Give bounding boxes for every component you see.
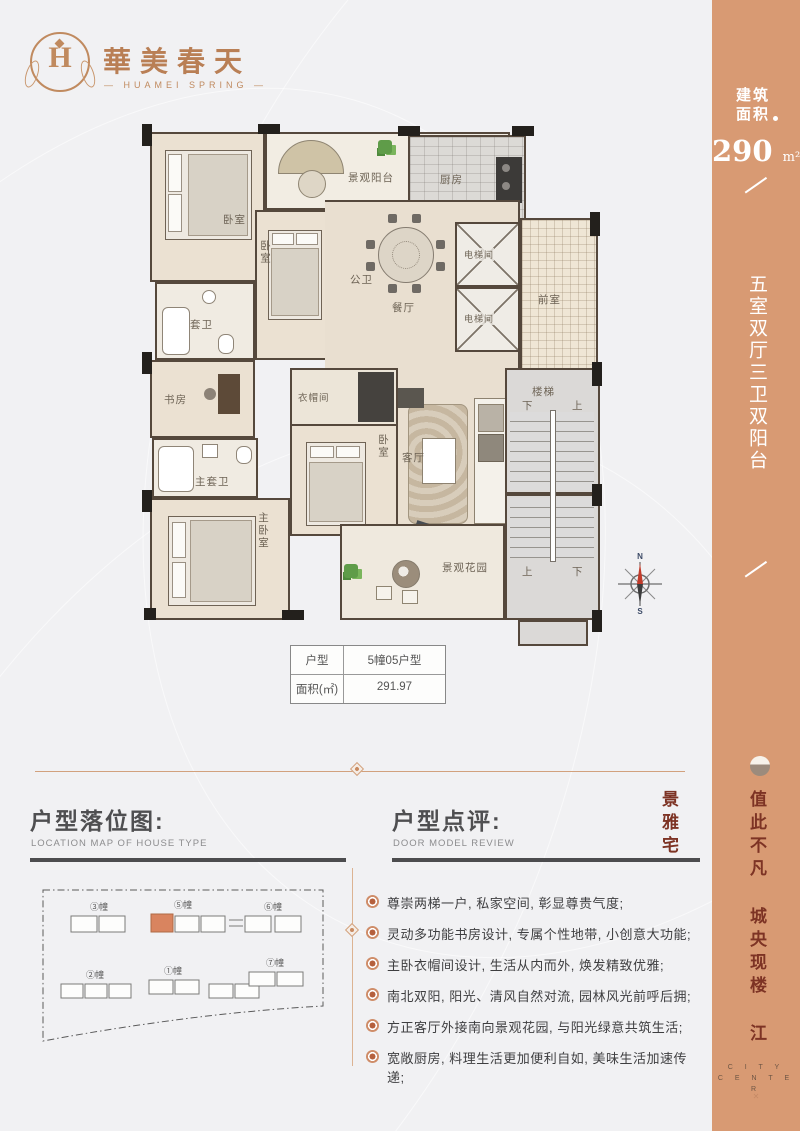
slash-divider [745, 177, 767, 193]
footer-mark-icon: ✕ [712, 1092, 800, 1101]
building-label: ③幢 [90, 901, 108, 912]
pillow-icon [272, 233, 294, 245]
chair-icon [412, 214, 421, 223]
pillow-icon [296, 233, 318, 245]
bullet-icon [366, 926, 379, 939]
room-label: 前室 [538, 292, 561, 307]
highlighted-unit [151, 914, 173, 932]
stair-exit-vestibule [518, 620, 588, 646]
moon-icon [750, 756, 770, 776]
room-label: 主套卫 [195, 474, 230, 489]
bullet-item: 主卧衣帽间设计, 生活从内而外, 焕发精致优雅; [366, 955, 700, 974]
wall-column [142, 490, 152, 512]
coffee-table-icon [422, 438, 456, 484]
brand-logo-emblem: H [30, 32, 90, 92]
table-value-cell: 5幢05户型 [344, 646, 445, 674]
stair-treads-icon [554, 498, 594, 558]
wall-column [590, 212, 600, 236]
bullet-item: 宽敞厨房, 料理生活更加便利自如, 美味生活加速传递; [366, 1048, 700, 1086]
city-center-text: C I T Y C E N T E R [712, 1062, 800, 1095]
compass-icon: N S [612, 550, 668, 616]
bullet-text: 方正客厅外接南向景观花园, 与阳光绿意共筑生活; [387, 1017, 683, 1036]
round-table-icon [298, 170, 326, 198]
pillow-icon [168, 194, 182, 232]
chair-icon [412, 284, 421, 293]
bullet-item: 方正客厅外接南向景观花园, 与阳光绿意共筑生活; [366, 1017, 700, 1036]
area-unit: m² [783, 150, 800, 165]
room-label: 景观阳台 [348, 170, 394, 185]
brand-name-en: — HUAMEI SPRING — [104, 80, 267, 90]
stair-treads-icon [510, 412, 550, 490]
room-label: 卧室 [376, 434, 391, 459]
stair-treads-icon [554, 412, 594, 490]
compass-rose: N S [612, 550, 668, 616]
wall-column [144, 608, 156, 620]
stair-direction-label: 下 [572, 564, 584, 579]
blanket-icon [309, 462, 363, 522]
bullet-icon [366, 1050, 379, 1063]
table-header-cell: 面积(㎡) [291, 675, 344, 703]
room-label: 电梯间 [464, 312, 494, 325]
logo-monogram: H [32, 43, 88, 73]
wall-column [258, 124, 280, 134]
location-section-bar [30, 858, 346, 862]
blanket-icon [271, 248, 319, 316]
plant-icon [344, 564, 358, 578]
dining-table-center-icon [392, 241, 420, 269]
room-label: 主卧室 [256, 512, 271, 550]
right-sidebar: 建筑 面积 290 m² 五室双厅三卫双阳台 值此不凡 城央现楼 江景雅宅 C … [712, 0, 800, 1131]
room-label: 公卫 [350, 272, 373, 287]
pillow-icon [336, 446, 360, 458]
building-label: ⑦幢 [266, 957, 284, 968]
room-label: 卧室 [223, 212, 246, 227]
location-map-svg: ③幢 ⑤幢 ⑥幢 ②幢 ①幢 ⑦幢 [33, 876, 333, 1058]
blanket-icon [190, 520, 252, 602]
building-area-value: 290 m² [712, 134, 800, 168]
stove-icon [496, 157, 522, 203]
wall-column [592, 484, 602, 506]
unit-info-table: 户型 5幢05户型 面积(㎡) 291.97 [290, 645, 446, 704]
table-row: 户型 5幢05户型 [291, 646, 445, 675]
bullet-text: 宽敞厨房, 料理生活更加便利自如, 美味生活加速传递; [387, 1048, 700, 1086]
room-label: 景观花园 [442, 560, 488, 575]
room-label: 厨房 [440, 172, 463, 187]
area-label-line1: 建筑 [736, 86, 770, 105]
bullet-text: 主卧衣帽间设计, 生活从内而外, 焕发精致优雅; [387, 955, 664, 974]
building-label: ②幢 [86, 969, 104, 980]
sink-icon [202, 444, 218, 458]
bullet-text: 灵动多功能书房设计, 专属个性地带, 小创意大功能; [387, 924, 691, 943]
laurel-left-icon [22, 59, 42, 89]
bullet-icon [366, 895, 379, 908]
chair-icon [204, 388, 216, 400]
table-value-cell: 291.97 [344, 675, 445, 703]
pillow-icon [310, 446, 334, 458]
layout-description: 五室双厅三卫双阳台 [712, 208, 800, 538]
bullet-text: 南北双阳, 阳光、清风自然对流, 园林风光前呼后拥; [387, 986, 691, 1005]
room-label: 餐厅 [392, 300, 415, 315]
wall-column [142, 352, 152, 374]
burner-icon [502, 164, 510, 172]
bullet-icon [366, 988, 379, 1001]
room-label: 电梯间 [464, 248, 494, 261]
desk-icon [218, 374, 240, 414]
room-label: 书房 [164, 392, 187, 407]
floor-plan: 卧室 景观阳台 厨房 套卫 卧室 公卫 书房 [140, 112, 665, 647]
building-label: ①幢 [164, 965, 182, 976]
bullet-item: 灵动多功能书房设计, 专属个性地带, 小创意大功能; [366, 924, 700, 943]
garden-chair-icon [376, 586, 392, 600]
stair-direction-label: 上 [572, 398, 584, 413]
compass-north-label: N [637, 552, 643, 561]
poster-page: H 華美春天 — HUAMEI SPRING — 建筑 面积 290 m² 五室… [0, 0, 800, 1131]
building-label: ⑤幢 [174, 899, 192, 910]
cushion-icon [478, 404, 504, 432]
stair-direction-label: 上 [522, 564, 534, 579]
room-label: 套卫 [190, 317, 213, 332]
room-label: 楼梯 [532, 384, 555, 399]
bullet-icon [366, 957, 379, 970]
review-section-bar [392, 858, 700, 862]
review-bullet-list: 尊崇两梯一户, 私家空间, 彰显尊贵气度; 灵动多功能书房设计, 专属个性地带,… [366, 893, 700, 1098]
location-section-subtitle: LOCATION MAP OF HOUSE TYPE [31, 838, 207, 849]
wall-column [592, 610, 602, 632]
wall-column [142, 124, 152, 146]
bathtub-icon [162, 307, 190, 355]
table-row: 面积(㎡) 291.97 [291, 675, 445, 703]
plant-icon [378, 140, 392, 154]
cushion-icon [478, 434, 504, 462]
slogan-vertical: 值此不凡 城央现楼 江景雅宅 [712, 790, 800, 1060]
slash-divider [745, 561, 767, 577]
sink-icon [202, 290, 216, 304]
chair-icon [366, 240, 375, 249]
wall-column [282, 610, 304, 620]
bathtub-icon [158, 446, 194, 492]
area-label-line2-wrap: 面积 [736, 105, 770, 124]
wall-column [512, 126, 534, 136]
room-label: 衣帽间 [298, 390, 330, 404]
location-map: ③幢 ⑤幢 ⑥幢 ②幢 ①幢 ⑦幢 [33, 876, 333, 1058]
burner-icon [502, 182, 510, 190]
closet-icon [358, 372, 394, 422]
vertical-divider [352, 868, 353, 1066]
toilet-icon [218, 334, 234, 354]
building-label: ⑥幢 [264, 901, 282, 912]
bullet-text: 尊崇两梯一户, 私家空间, 彰显尊贵气度; [387, 893, 624, 912]
divider-dot-icon [350, 928, 354, 932]
area-label-dot [773, 116, 778, 121]
wall-column [592, 362, 602, 386]
chair-icon [436, 262, 445, 271]
review-section-subtitle: DOOR MODEL REVIEW [393, 838, 515, 849]
wall-column [398, 126, 420, 136]
laurel-right-icon [78, 59, 98, 89]
chair-icon [366, 262, 375, 271]
tv-cabinet-icon [398, 388, 424, 408]
pillow-icon [172, 522, 186, 558]
pillow-icon [168, 154, 182, 192]
bullet-icon [366, 1019, 379, 1032]
pillow-icon [172, 562, 186, 598]
area-label: 建筑 面积 [736, 86, 770, 124]
city-line: C I T Y [712, 1062, 800, 1073]
review-section-title: 户型点评: [392, 802, 502, 836]
brand-name-cn: 華美春天 [103, 40, 251, 80]
stair-rail [550, 410, 556, 562]
bullet-item: 南北双阳, 阳光、清风自然对流, 园林风光前呼后拥; [366, 986, 700, 1005]
room-label: 卧室 [258, 240, 273, 265]
chair-icon [436, 240, 445, 249]
compass-south-label: S [637, 607, 643, 616]
stair-treads-icon [510, 498, 550, 558]
chair-icon [388, 214, 397, 223]
stair-direction-label: 下 [522, 398, 534, 413]
toilet-icon [236, 446, 252, 464]
location-section-title: 户型落位图: [30, 802, 165, 836]
garden-table-icon [392, 560, 420, 588]
area-label-line2: 面积 [736, 106, 770, 123]
garden-chair-icon [402, 590, 418, 604]
table-header-cell: 户型 [291, 646, 344, 674]
room-label: 客厅 [402, 450, 425, 465]
chair-icon [388, 284, 397, 293]
bullet-item: 尊崇两梯一户, 私家空间, 彰显尊贵气度; [366, 893, 700, 912]
